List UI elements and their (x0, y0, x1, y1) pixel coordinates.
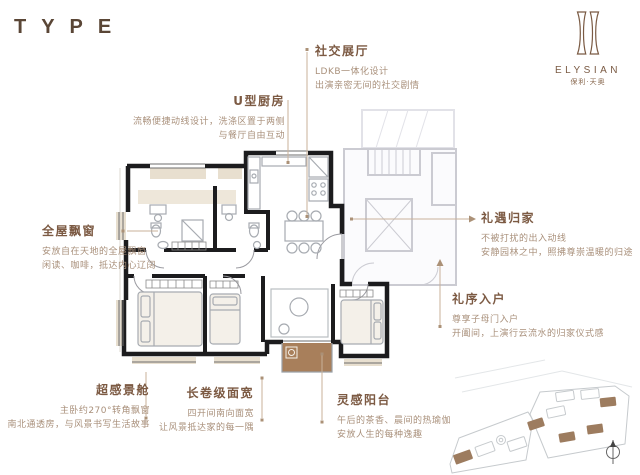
annotation-title: 长卷级面宽 (159, 384, 254, 401)
annotation-title: 灵感阳台 (337, 391, 451, 408)
annotation-desc: 四开间南向面宽 (159, 408, 254, 422)
annotation-desc: 出演亲密无间的社交剧情 (315, 80, 420, 94)
annotation-entry: 礼序入户 尊享子母门入户 开阖间，上演行云流水的归家仪式感 (452, 290, 604, 341)
annotation-desc: 安静园林之中，照拂尊崇温暖的归途 (481, 247, 633, 261)
site-plan (450, 360, 632, 473)
annotation-wide-frontage: 长卷级面宽 四开间南向面宽 让风景抵达家的每一隅 (159, 384, 254, 435)
annotation-desc: 闲读、咖啡，抵达内心辽阔 (42, 260, 156, 274)
annotation-desc: 午后的茶香、晨间的热瑜伽 (337, 415, 451, 429)
annotation-title: 礼遇归家 (481, 209, 633, 226)
annotation-homecoming: 礼遇归家 不被打扰的出入动线 安静园林之中，照拂尊崇温暖的归途 (481, 209, 633, 260)
core-area (344, 110, 456, 285)
annotation-desc: 流畅便捷动线设计，洗涤区置于两侧 (133, 116, 285, 130)
annotation-balcony: 灵感阳台 午后的茶香、晨间的热瑜伽 安放人生的每种逸趣 (337, 391, 451, 442)
annotation-title: 全屋飘窗 (42, 222, 156, 239)
annotation-desc: 与餐厅自由互动 (133, 130, 285, 144)
north-compass-icon (607, 440, 620, 464)
annotation-title: 超感景舱 (7, 381, 150, 398)
annotation-desc: 让风景抵达家的每一隅 (159, 422, 254, 436)
annotation-social-hall: 社交展厅 LDKB一体化设计 出演亲密无间的社交剧情 (315, 42, 420, 93)
annotation-desc: 开阖间，上演行云流水的归家仪式感 (452, 328, 604, 342)
annotation-u-kitchen: U型厨房 流畅便捷动线设计，洗涤区置于两侧 与餐厅自由互动 (133, 92, 285, 143)
annotation-desc: 南北通透房，与风景书写生活故事 (7, 419, 150, 433)
annotation-desc: LDKB一体化设计 (315, 66, 420, 80)
balcony-highlight (282, 343, 332, 372)
annotation-bay-windows: 全屋飘窗 安放自在天地的全屋飘窗 闲读、咖啡，抵达内心辽阔 (42, 222, 156, 273)
annotation-desc: 尊享子母门入户 (452, 314, 604, 328)
annotation-title: U型厨房 (133, 92, 285, 109)
annotation-desc: 不被打扰的出入动线 (481, 233, 633, 247)
annotation-sense-cabin: 超感景舱 主卧约270°转角飘窗 南北通透房，与风景书写生活故事 (7, 381, 150, 432)
annotation-desc: 安放人生的每种逸趣 (337, 429, 451, 443)
annotation-desc: 安放自在天地的全屋飘窗 (42, 246, 156, 260)
annotation-title: 礼序入户 (452, 290, 604, 307)
annotation-title: 社交展厅 (315, 42, 420, 59)
annotation-desc: 主卧约270°转角飘窗 (7, 405, 150, 419)
